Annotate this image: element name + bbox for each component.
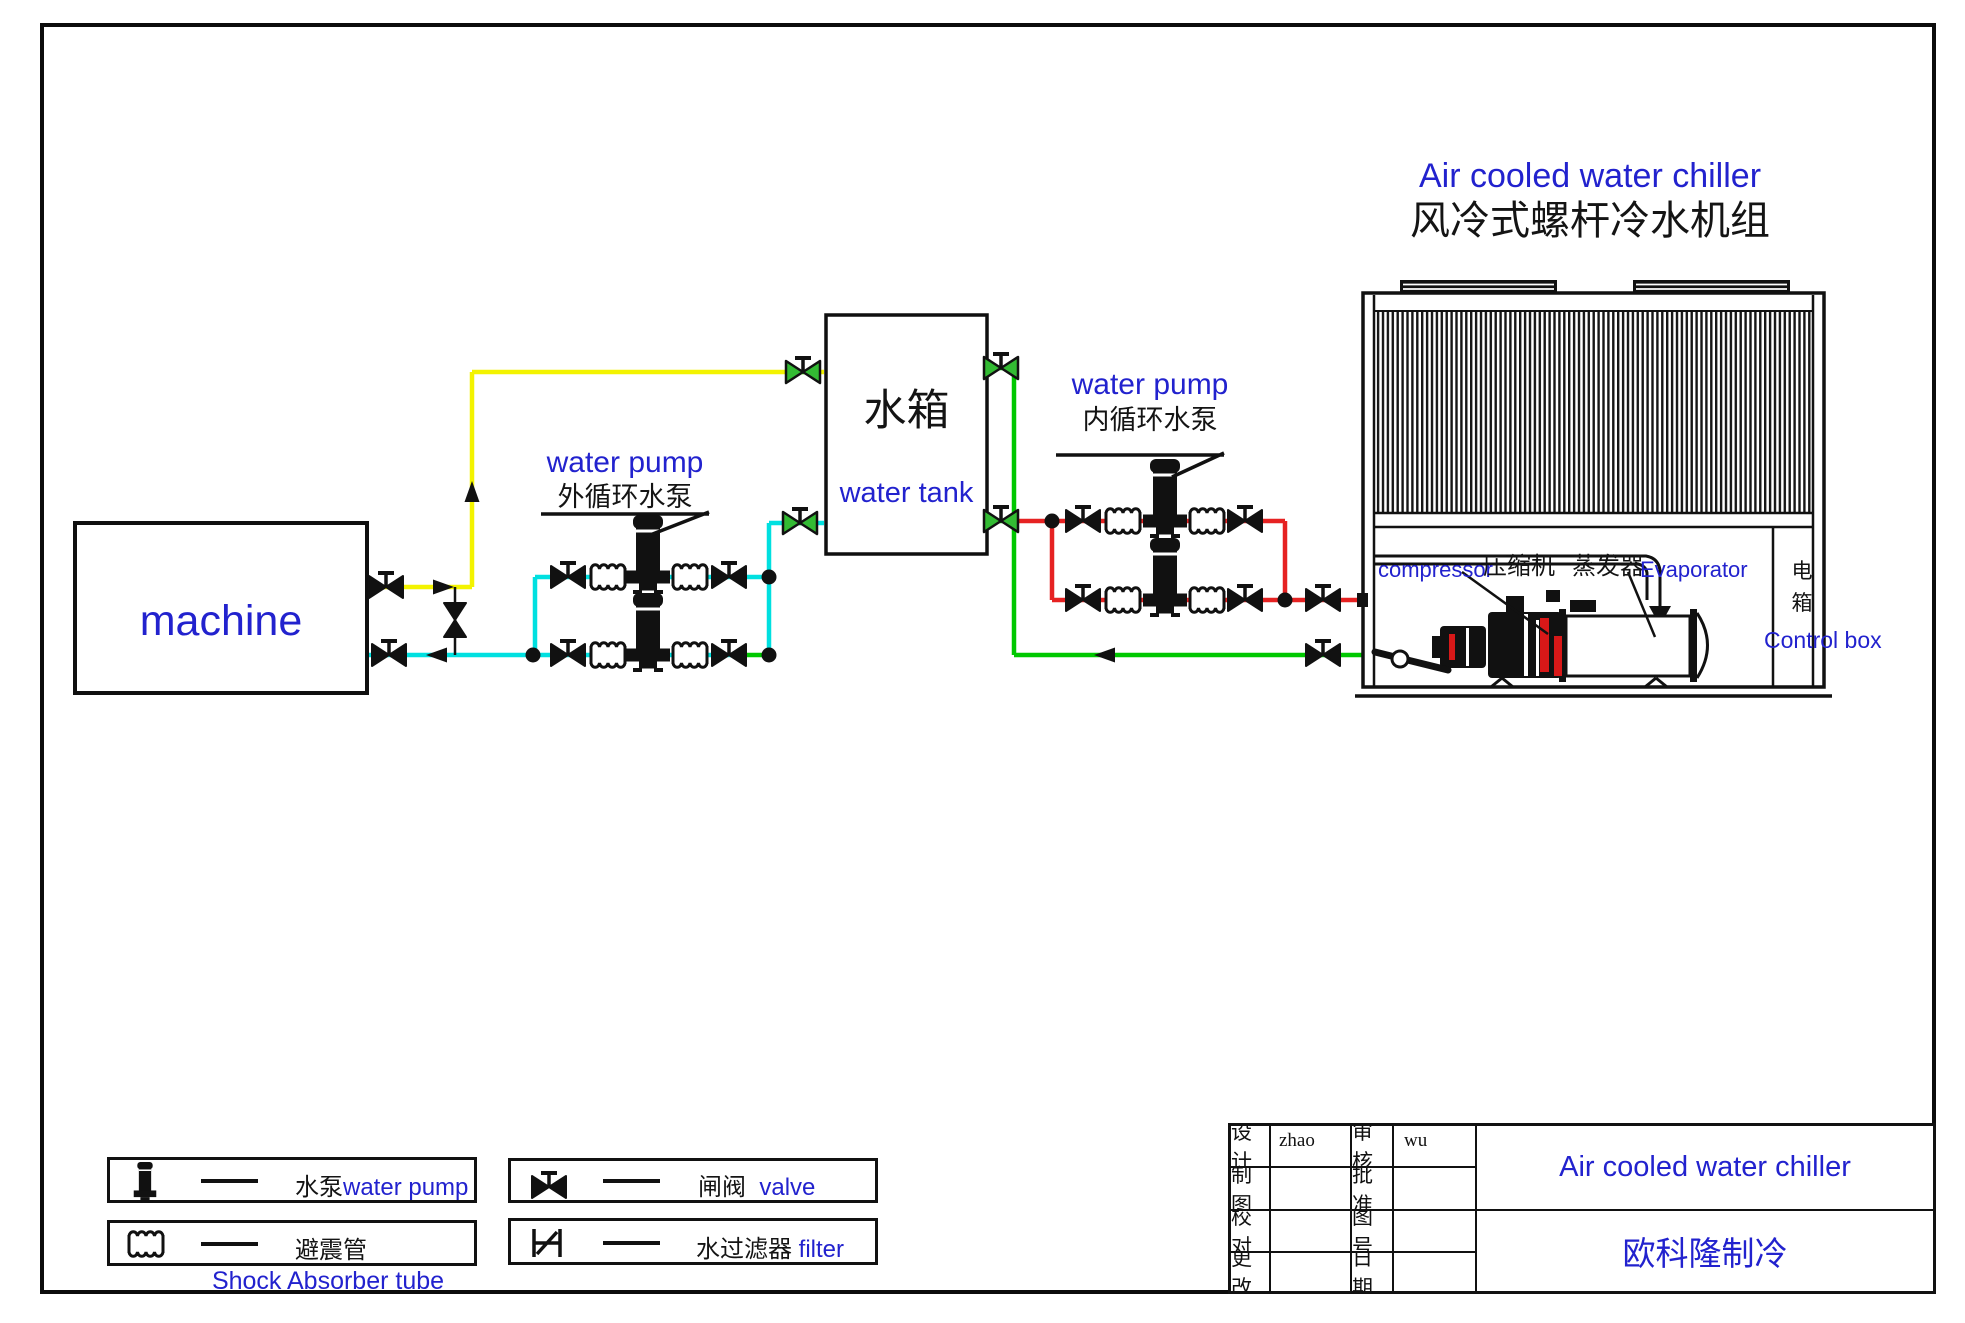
tb-value-date: [1394, 1253, 1477, 1291]
water-tank-label-zh: 水箱: [828, 388, 985, 435]
chiller-unit: [1355, 280, 1832, 696]
tb-label-drawing-no: 图号: [1352, 1211, 1394, 1253]
tb-value-approve: [1394, 1168, 1477, 1211]
tb-value-design: zhao: [1271, 1126, 1352, 1168]
legend-item-shock-absorber: 避震管: [107, 1220, 477, 1266]
water-tank-label-en: water tank: [828, 478, 985, 510]
tb-label-review: 审核: [1352, 1126, 1394, 1168]
legend-valve-en: valve: [759, 1174, 815, 1201]
tb-value-proofread: [1271, 1211, 1352, 1253]
tb-product-title: Air cooled water chiller: [1477, 1126, 1933, 1211]
legend-dash: [201, 1242, 258, 1246]
compressor-label-zh: 压缩机: [1483, 554, 1555, 580]
compressor-label-en: compressor: [1378, 558, 1493, 582]
legend-dash: [603, 1179, 660, 1183]
legend-shock-en: Shock Absorber tube: [178, 1268, 478, 1296]
tb-value-drawing-no: [1394, 1211, 1477, 1253]
valve-icon: [527, 1165, 571, 1201]
page-title-zh: 风冷式螺杆冷水机组: [1390, 199, 1790, 243]
evaporator-label-zh: 蒸发器: [1572, 554, 1644, 580]
shock-absorber-icon: [126, 1229, 166, 1259]
tb-label-design: 设计: [1231, 1126, 1271, 1168]
drawing-sheet: Air cooled water chiller 风冷式螺杆冷水机组 machi…: [0, 0, 1965, 1323]
legend-dash: [603, 1241, 660, 1245]
tb-label-change: 更改: [1231, 1253, 1271, 1291]
machine-label: machine: [80, 598, 362, 645]
external-pump-2: [626, 593, 670, 672]
legend-item-filter: 水过滤器 filter: [508, 1218, 878, 1265]
legend-item-water-pump: 水泵water pump: [107, 1157, 477, 1203]
compressor-motor: [1432, 626, 1486, 668]
tank-inlet-valve-icon: [786, 358, 820, 383]
legend-pump-en: water pump: [343, 1174, 468, 1201]
pump-icon: [130, 1161, 160, 1203]
tank-return-valve-icon: [984, 354, 1018, 379]
tb-value-change: [1271, 1253, 1352, 1291]
legend-valve-zh: 闸阀: [698, 1175, 746, 1201]
supply-pipe-yellow: [367, 372, 824, 587]
legend-filter-zh: 水过滤器: [696, 1237, 792, 1263]
page-title-en: Air cooled water chiller: [1398, 158, 1782, 195]
bypass-valve-icon: [444, 603, 466, 637]
legend-shock-zh: 避震管: [295, 1238, 367, 1264]
legend-item-valve: 闸阀 valve: [508, 1158, 878, 1203]
legend-pump-zh: 水泵: [295, 1175, 343, 1201]
legend-dash: [201, 1179, 258, 1183]
tb-label-draft: 制图: [1231, 1168, 1271, 1211]
control-box-label-en: Control box: [1764, 628, 1882, 653]
legend-filter-en: filter: [799, 1236, 844, 1263]
internal-pump-1: [1143, 459, 1187, 538]
condenser-fins: [1376, 311, 1811, 513]
external-pump-label-zh: 外循环水泵: [535, 483, 715, 513]
tb-label-date: 日期: [1352, 1253, 1394, 1291]
tb-value-draft: [1271, 1168, 1352, 1211]
evaporator-label-en: Evaporator: [1640, 558, 1748, 582]
tank-outlet-valve-icon: [783, 509, 817, 534]
tb-label-approve: 批准: [1352, 1168, 1394, 1211]
title-block: 设计 zhao 审核 wu Air cooled water chiller 制…: [1228, 1123, 1936, 1294]
control-box-label-zh: 电 箱: [1786, 556, 1818, 619]
evaporator-body: [1566, 616, 1690, 676]
filter-icon: [527, 1226, 567, 1260]
internal-pump-2: [1143, 538, 1187, 617]
tb-company-name: 欧科隆制冷: [1477, 1211, 1933, 1291]
external-pump-label-en: water pump: [535, 446, 715, 479]
external-pump-1: [626, 515, 670, 594]
tb-value-review: wu: [1394, 1126, 1477, 1168]
internal-pump-label-en: water pump: [1060, 368, 1240, 401]
internal-pump-label-zh: 内循环水泵: [1060, 406, 1240, 436]
tb-label-proofread: 校对: [1231, 1211, 1271, 1253]
